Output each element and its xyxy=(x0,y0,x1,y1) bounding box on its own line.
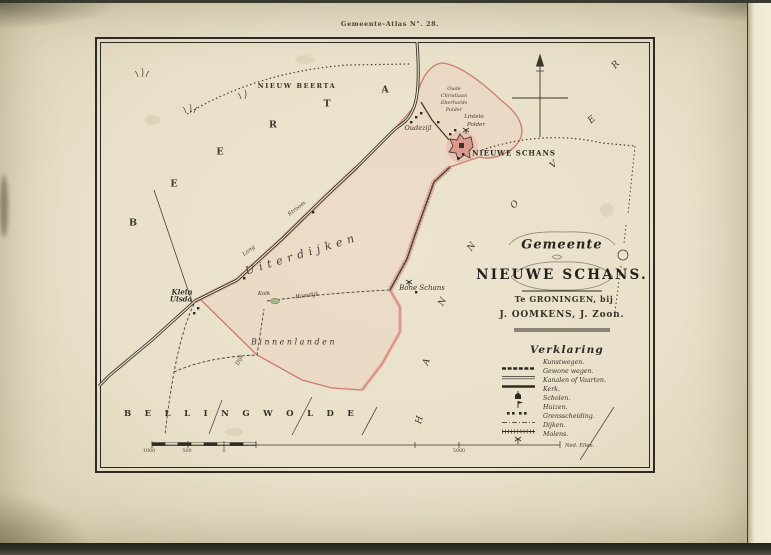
region-letter-beerta: T xyxy=(323,99,330,110)
region-letter-hannover: A xyxy=(421,357,433,367)
cartouche-gemeente: Gemeente xyxy=(521,238,602,253)
region-letter-beerta: E xyxy=(170,179,177,190)
label-nieuwe-schans: NIEUWE SCHANS xyxy=(472,149,556,158)
corner-shadow xyxy=(0,493,90,546)
legend-row: Kanalen of Vaarten. xyxy=(499,376,606,385)
label-lintelo-1: Lintelo xyxy=(464,114,484,121)
map-frame: BEERTAHANNOVER NIEUW BEERTA BELLINGWOLDE… xyxy=(95,37,655,473)
legend-title: Verklaring xyxy=(530,344,604,356)
legend-row: Molens. xyxy=(499,430,568,439)
region-letter-beerta: R xyxy=(269,120,277,131)
legend-row: Kunstwegen. xyxy=(499,358,584,367)
region-letter-hannover: H xyxy=(414,415,426,425)
molen-symbol xyxy=(499,430,543,439)
label-polder-3: Eberhards xyxy=(441,100,468,107)
label-polder-2: Christiaan xyxy=(441,93,467,100)
edge-smudge xyxy=(0,175,8,237)
scale-unit: Ned. Ellen. xyxy=(565,443,594,449)
legend-row: Scholen. xyxy=(499,394,570,403)
legend-label: Dijken. xyxy=(543,422,566,429)
paper-sheet: Gemeente-Atlas N°. 28. xyxy=(0,3,747,543)
legend-row: Kerk. xyxy=(499,385,560,394)
region-letter-hannover: O xyxy=(509,199,521,211)
scanned-map-screenshot: Gemeente-Atlas N°. 28. xyxy=(0,0,771,555)
legend-label: Kerk. xyxy=(543,386,560,393)
school-symbol xyxy=(499,394,543,403)
label-kolk: Kolk xyxy=(258,291,270,298)
legend-row: Huizen. xyxy=(499,403,568,412)
gewone-weg-line-symbol xyxy=(499,367,543,376)
label-bellingwolde: BELLINGWOLDE xyxy=(124,409,367,419)
grens-line-symbol xyxy=(499,412,543,421)
label-nieuw-beerta: NIEUW BEERTA xyxy=(258,82,337,90)
dijk-line-symbol xyxy=(499,421,543,430)
legend-label: Kunstwegen. xyxy=(543,359,584,366)
cartouche-rule xyxy=(522,291,602,292)
legend-label: Scholen. xyxy=(543,395,570,402)
plate-number-label: Gemeente-Atlas N°. 28. xyxy=(341,20,439,28)
cartouche-publisher-name: J. OOMKENS, J. Zoon. xyxy=(500,310,625,320)
cartouche-publisher-city: Te GRONINGEN, bij xyxy=(515,294,614,304)
region-letters-layer: BEERTAHANNOVER xyxy=(97,39,653,471)
kanaal-line-symbol xyxy=(499,376,543,385)
label-binnenlanden: Binnenlanden xyxy=(251,338,337,347)
kunstweg-line-symbol xyxy=(499,358,543,367)
cartouche-rule xyxy=(514,329,610,332)
legend-row: Gewone wegen. xyxy=(499,367,594,376)
legend-label: Kanalen of Vaarten. xyxy=(543,377,606,384)
region-letter-beerta: B xyxy=(129,218,137,229)
scale-number: 1000 xyxy=(143,449,155,454)
region-letter-hannover: E xyxy=(586,114,598,126)
legend-label: Gewone wegen. xyxy=(543,368,594,375)
label-oudezijl: Oudezijl xyxy=(404,124,431,132)
scan-background-strip xyxy=(0,543,771,555)
huizen-symbol xyxy=(499,403,543,412)
region-letter-hannover: N xyxy=(466,241,479,253)
legend-label: Grensscheiding. xyxy=(543,413,595,420)
corner-shadow xyxy=(0,3,120,29)
legend-row: Grensscheiding. xyxy=(499,412,595,421)
label-lintelo-2: Polder xyxy=(467,122,485,129)
scale-number: 500 xyxy=(182,449,191,454)
region-letter-hannover: V xyxy=(548,159,560,171)
label-bone-schans: Bone Schans xyxy=(399,284,445,292)
legend-row: Dijken. xyxy=(499,421,566,430)
region-letter-hannover: N xyxy=(437,296,450,308)
region-letter-beerta: A xyxy=(381,85,388,96)
cartouche-title: NIEUWE SCHANS. xyxy=(476,267,648,283)
legend-label: Molens. xyxy=(543,431,568,438)
kerk-symbol xyxy=(499,385,543,394)
legend-label: Huizen. xyxy=(543,404,568,411)
label-polder-4: Polder xyxy=(446,107,462,114)
adjacent-page-edge xyxy=(748,3,771,543)
scale-number: 5000 xyxy=(453,449,465,454)
region-letter-beerta: E xyxy=(216,147,223,158)
region-letter-hannover: R xyxy=(610,59,622,71)
scale-number: 0 xyxy=(222,449,225,454)
label-polder-1: Oude xyxy=(447,86,460,93)
label-klein-ulsda-2: Ulsda xyxy=(170,296,192,303)
